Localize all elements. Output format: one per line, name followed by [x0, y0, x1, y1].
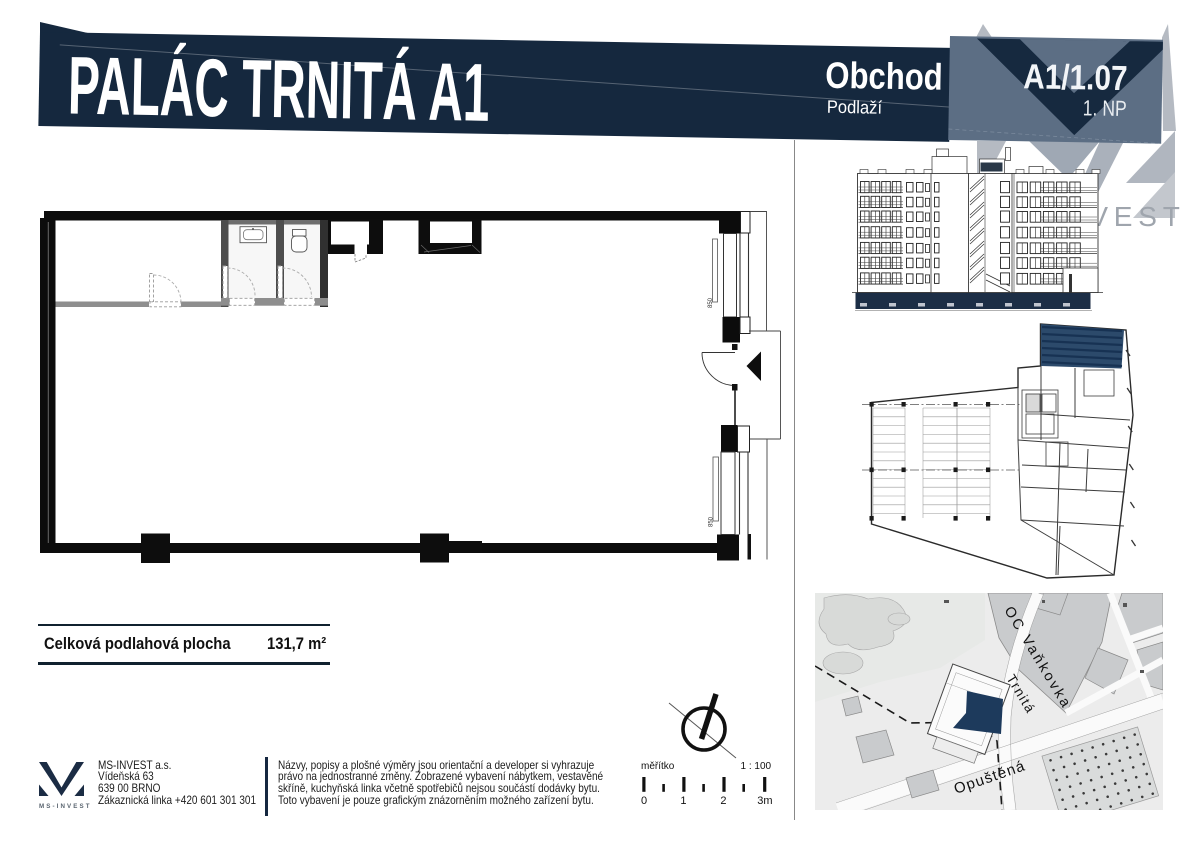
svg-text:850: 850	[709, 516, 715, 527]
svg-text:MS-INVEST: MS-INVEST	[39, 803, 92, 810]
svg-text:850: 850	[708, 297, 714, 308]
